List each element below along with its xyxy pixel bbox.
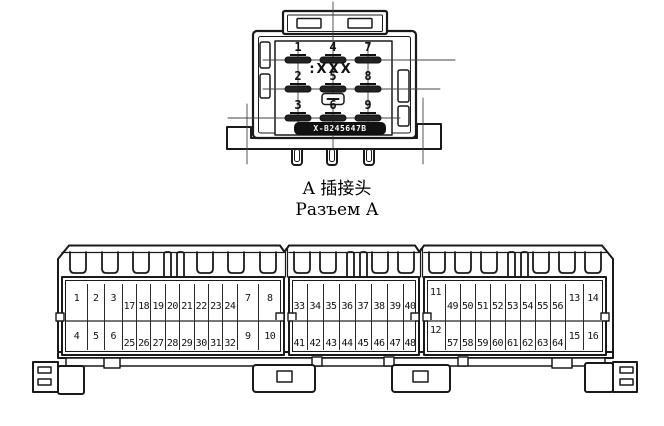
connector-a-drawing <box>227 2 455 165</box>
connector-b-pin-number: 24 <box>223 300 237 313</box>
connector-b-pin-number: 50 <box>460 300 475 313</box>
connector-a-pin-number: 3 <box>290 99 306 114</box>
connector-b-pin-number: 40 <box>403 300 417 313</box>
connector-b-pin-number: 42 <box>307 337 323 350</box>
cell-separator <box>87 284 88 350</box>
connector-pinout-diagram: :XXX X-B245647B A 插接头 Разъем А 147258369… <box>0 0 664 426</box>
connector-a-pin-number: 9 <box>360 99 376 114</box>
cell-separator <box>445 284 446 350</box>
connector-b-pin-number: 4 <box>66 330 87 343</box>
connector-a-pin-number: 8 <box>360 70 376 85</box>
connector-a-pin-number: 6 <box>325 99 341 114</box>
cell-separator <box>371 284 372 350</box>
connector-b-pin-number: 13 <box>565 292 584 305</box>
connector-b-pin-number: 6 <box>105 330 123 343</box>
connector-b-pin-number: 16 <box>584 330 603 343</box>
connector-b-pin-number: 9 <box>237 330 259 343</box>
row-divider <box>66 320 280 322</box>
connector-b-pin-number: 32 <box>223 337 237 350</box>
cell-separator <box>520 284 521 350</box>
connector-b-pin-number: 17 <box>122 300 136 313</box>
cell-separator <box>355 284 356 350</box>
connector-b-pin-number: 29 <box>180 337 194 350</box>
mounting-brackets <box>253 365 450 392</box>
connector-b-pin-number: 15 <box>565 330 584 343</box>
connector-b-pin-number: 37 <box>355 300 371 313</box>
connector-b-pin-number: 1 <box>66 292 87 305</box>
connector-b-pin-number: 11 <box>426 286 445 299</box>
connector-b-pin-number: 39 <box>387 300 403 313</box>
connector-b-pin-number: 20 <box>165 300 179 313</box>
cell-separator <box>165 284 166 350</box>
cell-separator <box>307 284 308 350</box>
cell-separator <box>104 284 105 350</box>
connector-b-pin-number: 47 <box>387 337 403 350</box>
connector-b-pin-number: 21 <box>180 300 194 313</box>
connector-b-pin-number: 14 <box>584 292 603 305</box>
cell-separator <box>535 284 536 350</box>
connector-a-pin-number: 2 <box>290 70 306 85</box>
connector-b-pin-number: 3 <box>105 292 123 305</box>
connector-a-pin-number: 7 <box>360 41 376 56</box>
cell-separator <box>475 284 476 350</box>
connector-b-pin-number: 8 <box>259 292 282 305</box>
cell-separator <box>150 284 151 350</box>
connector-b-pin-number: 31 <box>208 337 222 350</box>
connector-b-pin-number: 56 <box>550 300 565 313</box>
cell-separator <box>583 284 584 350</box>
connector-b-pin-number: 10 <box>259 330 282 343</box>
connector-b-pin-number: 45 <box>355 337 371 350</box>
connector-b-pin-number: 60 <box>490 337 505 350</box>
cell-separator <box>208 284 209 350</box>
connector-b-pin-number: 46 <box>371 337 387 350</box>
connector-a-pin-number: 5 <box>325 70 341 85</box>
connector-b-pin-number: 43 <box>323 337 339 350</box>
connector-b-pin-number: 30 <box>194 337 208 350</box>
cell-separator <box>460 284 461 350</box>
connector-b-pin-number: 52 <box>490 300 505 313</box>
end-feet <box>33 362 637 394</box>
cell-separator <box>136 284 137 350</box>
cell-separator <box>403 284 404 350</box>
cell-separator <box>505 284 506 350</box>
connector-b-pin-number: 53 <box>505 300 520 313</box>
connector-b-pin-number: 34 <box>307 300 323 313</box>
connector-b-pin-number: 12 <box>426 324 445 337</box>
connector-b-pin-number: 59 <box>475 337 490 350</box>
connector-a-pin-number: 4 <box>325 41 341 56</box>
cell-separator <box>258 284 259 350</box>
connector-b-pin-number: 57 <box>445 337 460 350</box>
connector-b-pin-number: 33 <box>291 300 307 313</box>
cell-separator <box>323 284 324 350</box>
connector-b-pin-number: 64 <box>550 337 565 350</box>
connector-b-pin-number: 62 <box>520 337 535 350</box>
connector-b-pin-number: 22 <box>194 300 208 313</box>
cell-separator <box>565 284 566 350</box>
caption-russian: Разъем А <box>247 200 427 220</box>
part-number-text: X-B245647B <box>294 124 386 133</box>
connector-b-pin-number: 49 <box>445 300 460 313</box>
cell-separator <box>237 284 238 350</box>
connector-b-pin-number: 36 <box>339 300 355 313</box>
connector-a-pin-number: 1 <box>290 41 306 56</box>
cell-separator <box>122 284 123 350</box>
connector-b-pin-number: 44 <box>339 337 355 350</box>
connector-b-pin-number: 27 <box>151 337 165 350</box>
connector-b-pin-number: 58 <box>460 337 475 350</box>
connector-b-pin-number: 25 <box>122 337 136 350</box>
connector-b-pin-number: 7 <box>237 292 259 305</box>
connector-b-pin-number: 55 <box>535 300 550 313</box>
cell-separator <box>550 284 551 350</box>
connector-b-pin-number: 41 <box>291 337 307 350</box>
connector-b-pin-number: 61 <box>505 337 520 350</box>
connector-b-pin-number: 19 <box>151 300 165 313</box>
connector-b-pin-number: 23 <box>208 300 222 313</box>
caption-chinese: A 插接头 <box>247 174 427 199</box>
connector-b-pin-number: 35 <box>323 300 339 313</box>
connector-b-pin-number: 28 <box>165 337 179 350</box>
cell-separator <box>194 284 195 350</box>
connector-b-pin-number: 18 <box>136 300 150 313</box>
connector-b-pin-number: 63 <box>535 337 550 350</box>
connector-b-pin-number: 26 <box>136 337 150 350</box>
cell-separator <box>179 284 180 350</box>
connector-b-pin-number: 51 <box>475 300 490 313</box>
cell-separator <box>387 284 388 350</box>
mounting-rail <box>66 358 605 366</box>
connector-b-pin-number: 38 <box>371 300 387 313</box>
cell-separator <box>339 284 340 350</box>
connector-b-pin-number: 48 <box>403 337 417 350</box>
cell-separator <box>490 284 491 350</box>
row-divider <box>428 320 602 322</box>
cell-separator <box>222 284 223 350</box>
connector-b-pin-number: 5 <box>87 330 105 343</box>
connector-b-pin-number: 2 <box>87 292 105 305</box>
connector-b-pin-number: 54 <box>520 300 535 313</box>
